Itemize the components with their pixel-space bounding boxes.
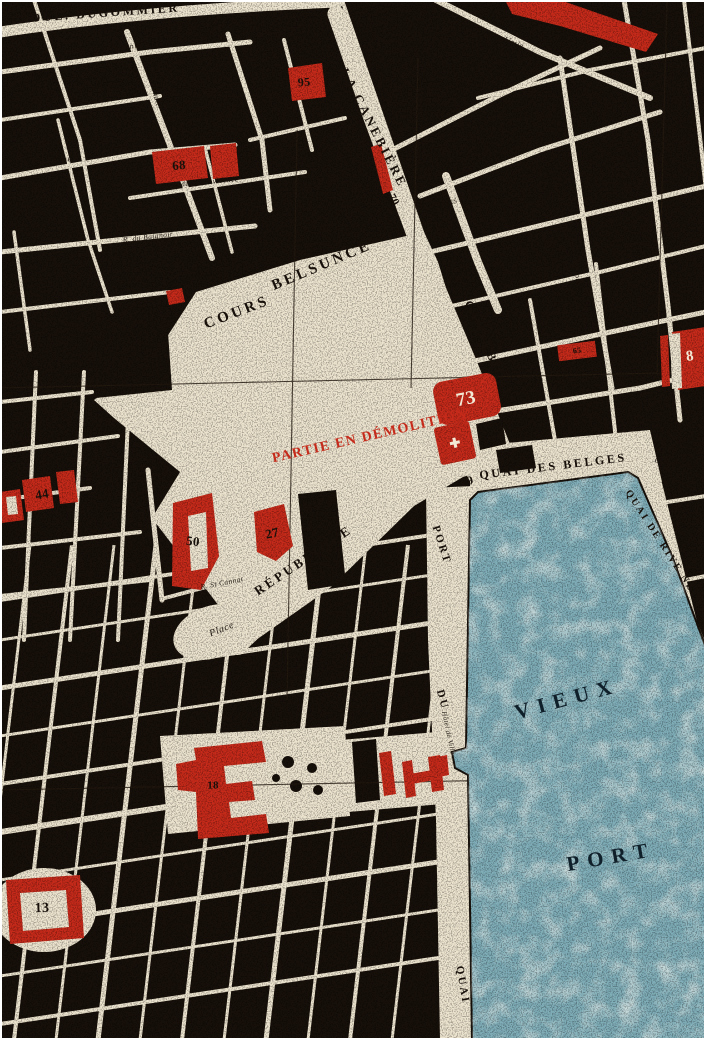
map-canvas[interactable]: BOUL. DUGOMMIERLA CANEBIÈRECOURSBELSUNCE… — [0, 0, 706, 1040]
scan-noise-overlay — [0, 0, 706, 1040]
map-svg — [0, 0, 706, 1040]
